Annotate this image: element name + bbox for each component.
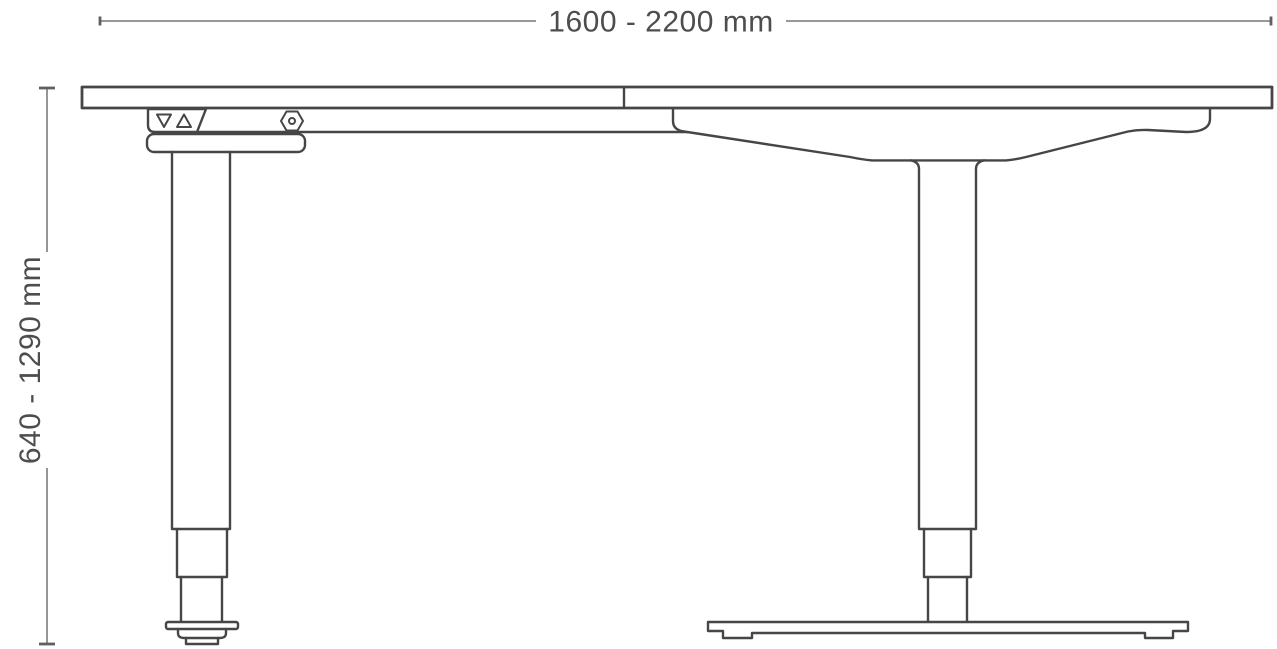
right-leg-bracket-wing: [673, 108, 1210, 160]
right-foot-plate: [708, 622, 1188, 638]
control-panel-body: [148, 109, 206, 132]
left-leg: [166, 152, 238, 644]
left-leg-middle-segment: [177, 529, 227, 577]
left-foot: [166, 622, 238, 644]
left-foot-pedestal: [178, 629, 226, 638]
left-leg-upper-segment: [172, 152, 230, 529]
desk-dimension-diagram: 1600 - 2200 mm 640 - 1290 mm: [0, 0, 1277, 649]
left-height-dimension: 640 - 1290 mm: [14, 88, 55, 644]
right-leg-middle-segment: [924, 529, 971, 577]
left-foot-flange: [166, 622, 238, 629]
hex-bolt-icon: [281, 112, 303, 131]
height-dimension-label: 640 - 1290 mm: [14, 256, 47, 464]
right-leg-upper-segment: [911, 160, 984, 529]
left-leg-lower-segment: [181, 577, 222, 622]
right-leg-lower-segment: [928, 577, 967, 622]
left-leg-bracket: [147, 134, 305, 152]
control-panel: [148, 109, 206, 132]
desk-drawing: [82, 87, 1272, 644]
top-width-dimension: 1600 - 2200 mm: [100, 6, 1271, 39]
desk-top: [82, 87, 1272, 108]
hex-bolt-outline: [281, 112, 303, 131]
width-dimension-label: 1600 - 2200 mm: [548, 6, 773, 39]
right-leg: [708, 160, 1188, 638]
